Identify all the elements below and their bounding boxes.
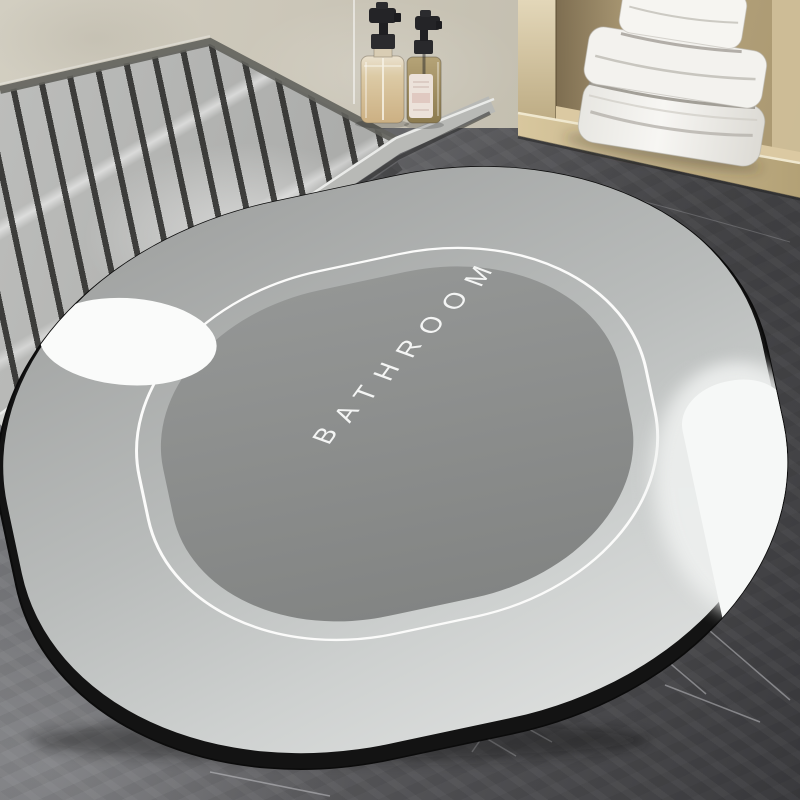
pump-stem-large xyxy=(379,22,388,35)
tray-back-rim-highlight xyxy=(0,36,210,84)
pump-stem-small xyxy=(420,29,428,41)
tray-back-rim xyxy=(0,42,396,140)
cabinet-right-panel xyxy=(772,0,800,160)
pump-spout-large xyxy=(394,13,401,22)
cabinet-left-stile xyxy=(518,0,556,131)
pump-bottle-large xyxy=(361,2,404,123)
pump-nub-small xyxy=(420,10,431,17)
label-accent xyxy=(412,93,430,103)
pump-nub-large xyxy=(376,2,388,9)
scene-overlay: BATHROOM xyxy=(0,0,800,800)
pump-bottle-small xyxy=(407,10,442,123)
pump-collar-large xyxy=(371,34,395,49)
bathroom-product-photo: BATHROOM xyxy=(0,0,800,800)
soap-bottles xyxy=(355,2,444,129)
pump-spout-small xyxy=(436,21,442,29)
pump-head-large xyxy=(369,8,396,23)
bottle-neck-large xyxy=(374,48,392,57)
pump-collar-small xyxy=(414,40,433,54)
bath-mat: BATHROOM xyxy=(0,96,800,800)
